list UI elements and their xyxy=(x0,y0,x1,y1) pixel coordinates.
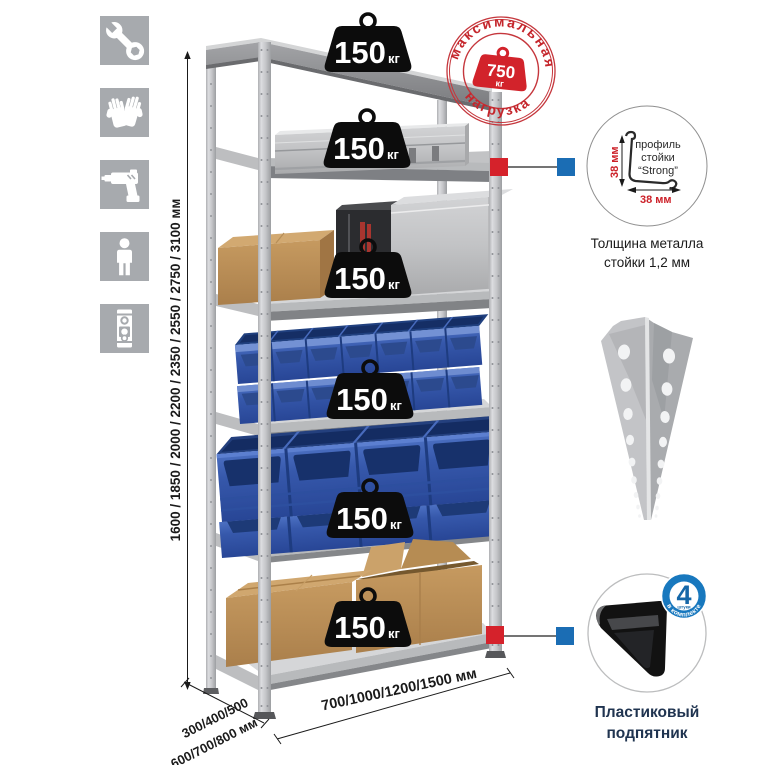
svg-text:профиль: профиль xyxy=(635,139,681,151)
svg-text:подпятник: подпятник xyxy=(606,725,687,742)
svg-text:38 мм: 38 мм xyxy=(640,194,672,206)
svg-text:1600 / 1850 / 2000 / 2200 / 23: 1600 / 1850 / 2000 / 2200 / 2350 / 2550 … xyxy=(168,199,183,542)
svg-text:Толщина металла: Толщина металла xyxy=(591,236,704,251)
svg-text:38 мм: 38 мм xyxy=(609,146,621,178)
svg-text:стойки 1,2 мм: стойки 1,2 мм xyxy=(604,255,690,270)
svg-text:кг: кг xyxy=(495,78,505,89)
svg-text:штуки: штуки xyxy=(677,605,691,610)
svg-text:Пластиковый: Пластиковый xyxy=(595,704,700,721)
svg-text:“Strong”: “Strong” xyxy=(638,165,678,177)
svg-text:стойки: стойки xyxy=(641,152,675,164)
